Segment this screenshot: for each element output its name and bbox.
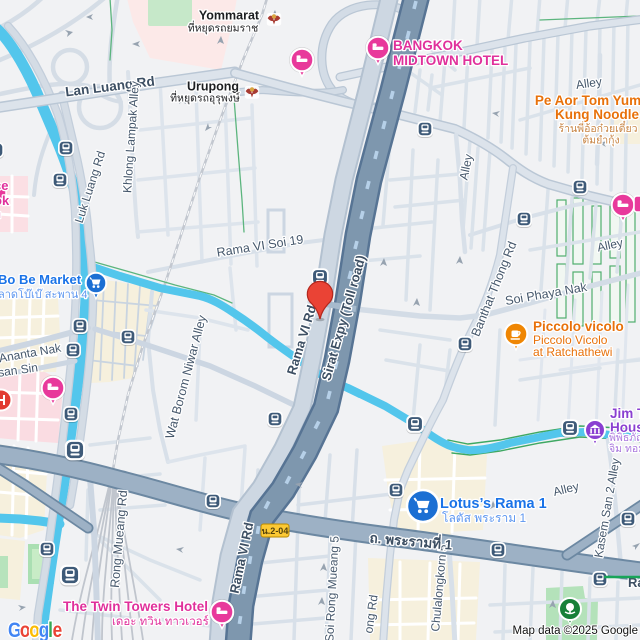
svg-text:ce: ce [0,178,8,193]
svg-text:Jim Th: Jim Th [610,406,640,421]
svg-text:Piccolo vicolo: Piccolo vicolo [533,319,624,334]
svg-text:Yommarat: Yommarat [199,9,260,23]
svg-text:Kung Noodle: Kung Noodle [555,107,639,122]
svg-text:Bo Be Market: Bo Be Market [0,272,82,287]
svg-text:MIDTOWN HOTEL: MIDTOWN HOTEL [393,53,508,68]
svg-text:ok: ok [0,193,10,208]
svg-text:Urupong: Urupong [187,80,239,94]
svg-text:Map data ©2025 Google: Map data ©2025 Google [513,625,638,637]
svg-text:The Twin Towers Hotel: The Twin Towers Hotel [63,599,208,614]
svg-text:โลตัส พระราม 1: โลตัส พระราม 1 [442,511,526,525]
svg-text:BANGKOK: BANGKOK [393,38,463,53]
svg-text:ที่หยุดรถยมราช: ที่หยุดรถยมราช [188,21,259,35]
svg-text:Pe Aor Tom Yum: Pe Aor Tom Yum [535,93,640,108]
svg-text:ต้มยำกุ้ง: ต้มยำกุ้ง [582,135,619,147]
svg-text:Lotus’s Rama 1: Lotus’s Rama 1 [440,496,547,512]
svg-text:e: e [53,620,63,640]
svg-text:จิม ทอมป์: จิม ทอมป์ [609,442,640,455]
svg-text:ลาดโบ๊เบ๊ สะพาน 4: ลาดโบ๊เบ๊ สะพาน 4 [0,287,88,301]
svg-text:ร้านพี่อ้อก๋วยเตี๋ยว: ร้านพี่อ้อก๋วยเตี๋ยว [558,120,637,135]
svg-text:ที่หยุดรถอุรุพงษ์: ที่หยุดรถอุรุพงษ์ [170,91,240,105]
svg-text:พ: พ [0,209,1,221]
svg-text:เดอะ ทวิน ทาวเวอร์: เดอะ ทวิน ทาวเวอร์ [112,614,209,628]
svg-text:น.2-04: น.2-04 [262,526,289,536]
svg-text:at Ratchathewi: at Ratchathewi [533,345,612,359]
